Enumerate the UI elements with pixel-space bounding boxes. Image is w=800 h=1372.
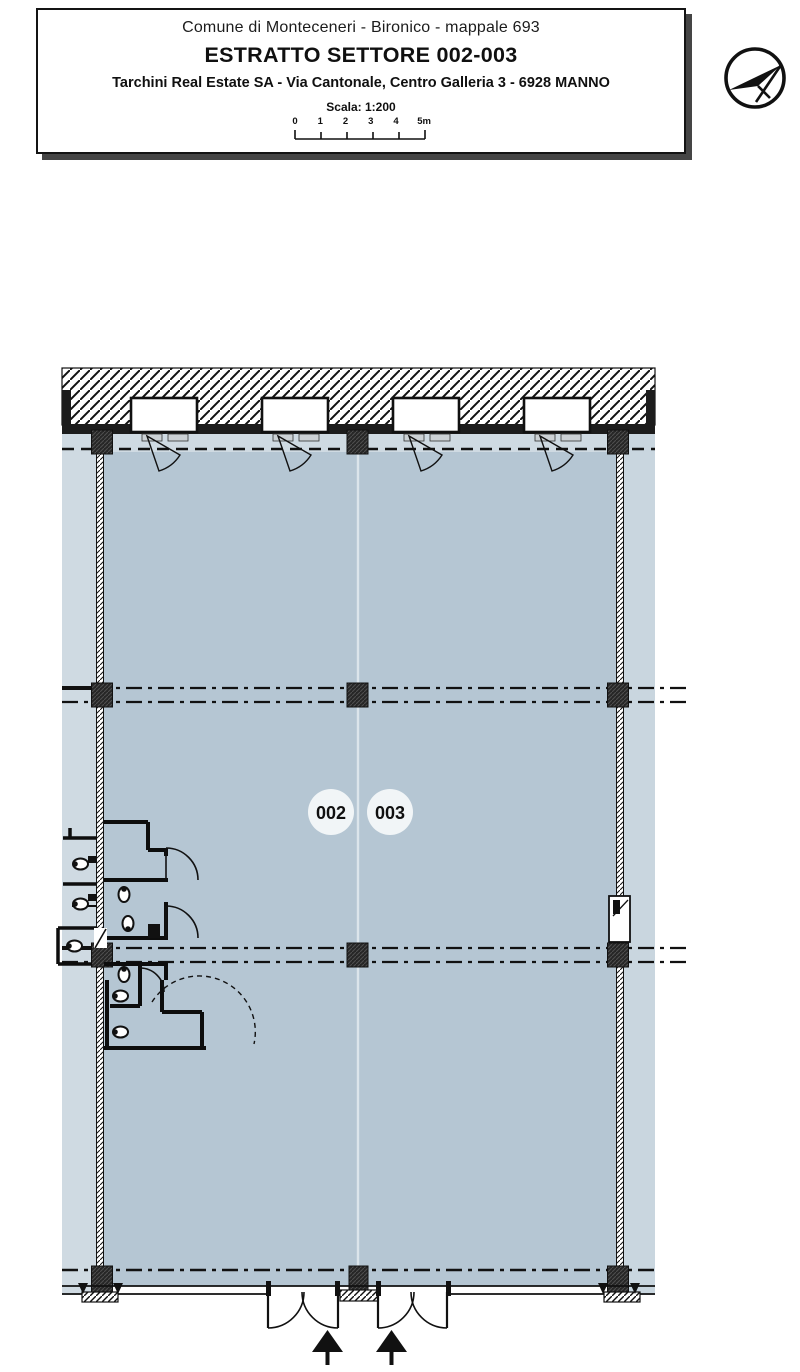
sector-label-003: 003 [375,803,405,823]
entrance-door [268,1292,338,1328]
left-wall [97,433,104,1285]
column [347,943,368,967]
right-wall-door [609,896,630,942]
column [347,683,368,707]
floor-fill [62,433,655,1295]
entrance-arrow-icon [312,1330,407,1365]
door-swing-icon [378,1292,414,1328]
bottom-facade [62,1281,655,1365]
door-swing-icon [411,1292,447,1328]
column [92,1266,113,1292]
column [92,430,113,454]
column-footing [340,1290,378,1301]
door-swing-icon [302,1292,338,1328]
column [608,943,629,967]
sector-label-002: 002 [316,803,346,823]
column [92,683,113,707]
toilet-icon [66,941,82,952]
floor-plan: 002 003 [0,0,800,1372]
entrance-door [378,1292,447,1328]
door-swing-icon [268,1292,304,1328]
column [608,430,629,454]
toilet-icon [72,899,88,910]
column-footing [82,1292,118,1302]
toilet-icon [112,1027,128,1038]
column [608,683,629,707]
toilet-icon [119,886,130,902]
column-footing [604,1292,640,1302]
right-wall [617,433,624,1285]
toilet-icon [119,966,130,982]
toilet-icon [123,916,134,932]
column [347,430,368,454]
toilet-icon [72,859,88,870]
plan-extract-page: Comune di Monteceneri - Bironico - mappa… [0,0,800,1372]
column [608,1266,629,1292]
toilet-icon [112,991,128,1002]
